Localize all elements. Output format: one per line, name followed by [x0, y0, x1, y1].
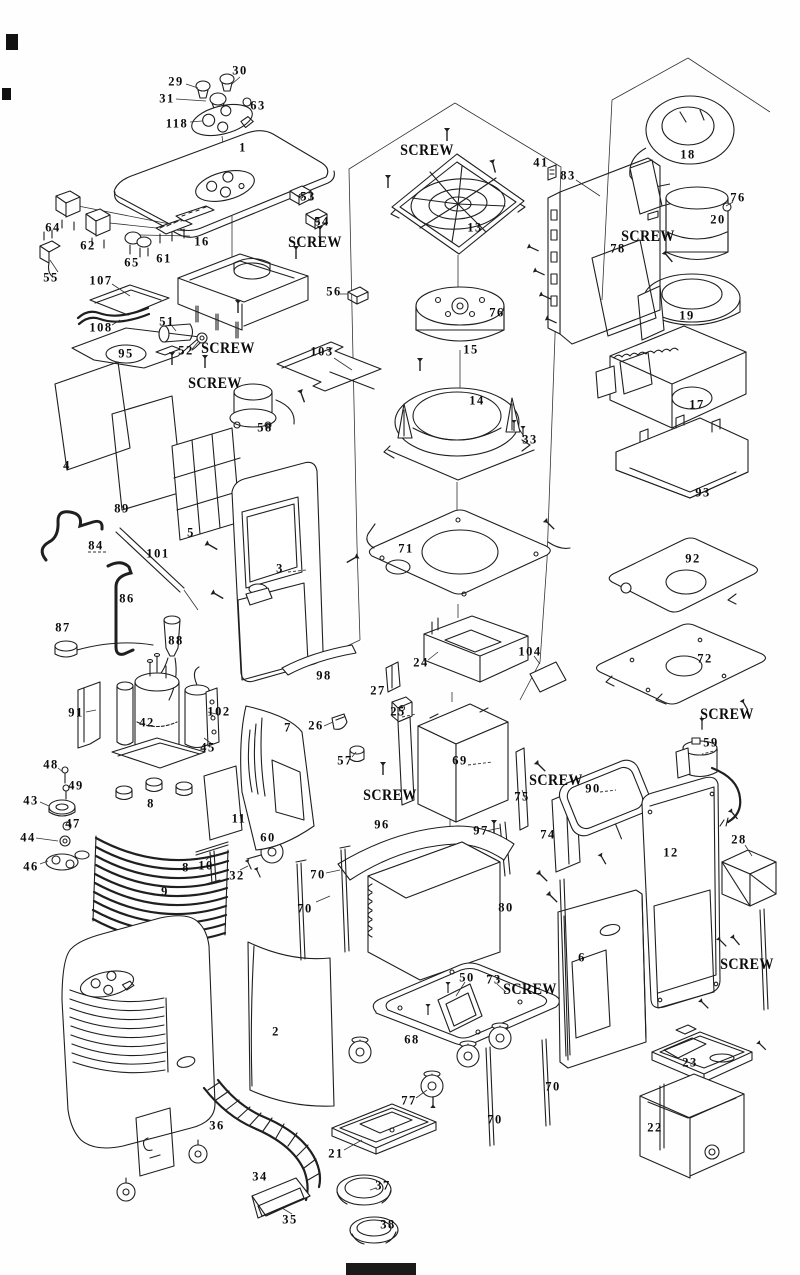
duct-58-part — [230, 384, 294, 428]
hose-adapter-parts — [252, 1175, 398, 1244]
condensate-tray-part — [332, 1104, 436, 1154]
hardware-chain-parts — [36, 767, 89, 870]
back-panel-part — [248, 942, 334, 1106]
curved-panel-part — [241, 706, 314, 850]
water-tank-22-part — [640, 1074, 744, 1178]
drip-tray-part — [652, 1025, 768, 1082]
top-cover-part — [114, 131, 334, 238]
plate-92-part — [609, 538, 757, 612]
diagram-line-art — [0, 0, 800, 1275]
exploded-parts-diagram-page: 2930316311815354646265611655107108515295… — [0, 0, 800, 1275]
fan-housing-part — [384, 388, 534, 480]
base-pan-part — [373, 963, 559, 1045]
evaporator-coil-part — [368, 842, 500, 980]
compressor-part — [78, 654, 219, 800]
front-door-part — [232, 462, 323, 681]
wire-parts — [42, 512, 198, 700]
fan-grille-part — [391, 154, 525, 254]
gasket-plate-parts — [72, 284, 207, 368]
drain-tray-103-part — [277, 342, 381, 391]
charcoal-cylinder-part — [666, 187, 733, 260]
mesh-filter-part — [592, 240, 656, 336]
grommet-parts — [116, 778, 192, 800]
blower-wheel-part — [416, 287, 504, 341]
filter-parts — [55, 362, 243, 540]
vent-outlet-part — [722, 845, 776, 906]
plate-72-part — [597, 624, 766, 704]
bracket-93-part — [616, 415, 748, 498]
control-box-part — [424, 616, 566, 692]
switch-parts — [290, 186, 368, 304]
assembled-unit-part — [62, 916, 215, 1201]
mounting-plate-part — [367, 510, 570, 596]
water-tank-17-part — [596, 326, 746, 428]
blower-housing-part — [178, 254, 308, 338]
